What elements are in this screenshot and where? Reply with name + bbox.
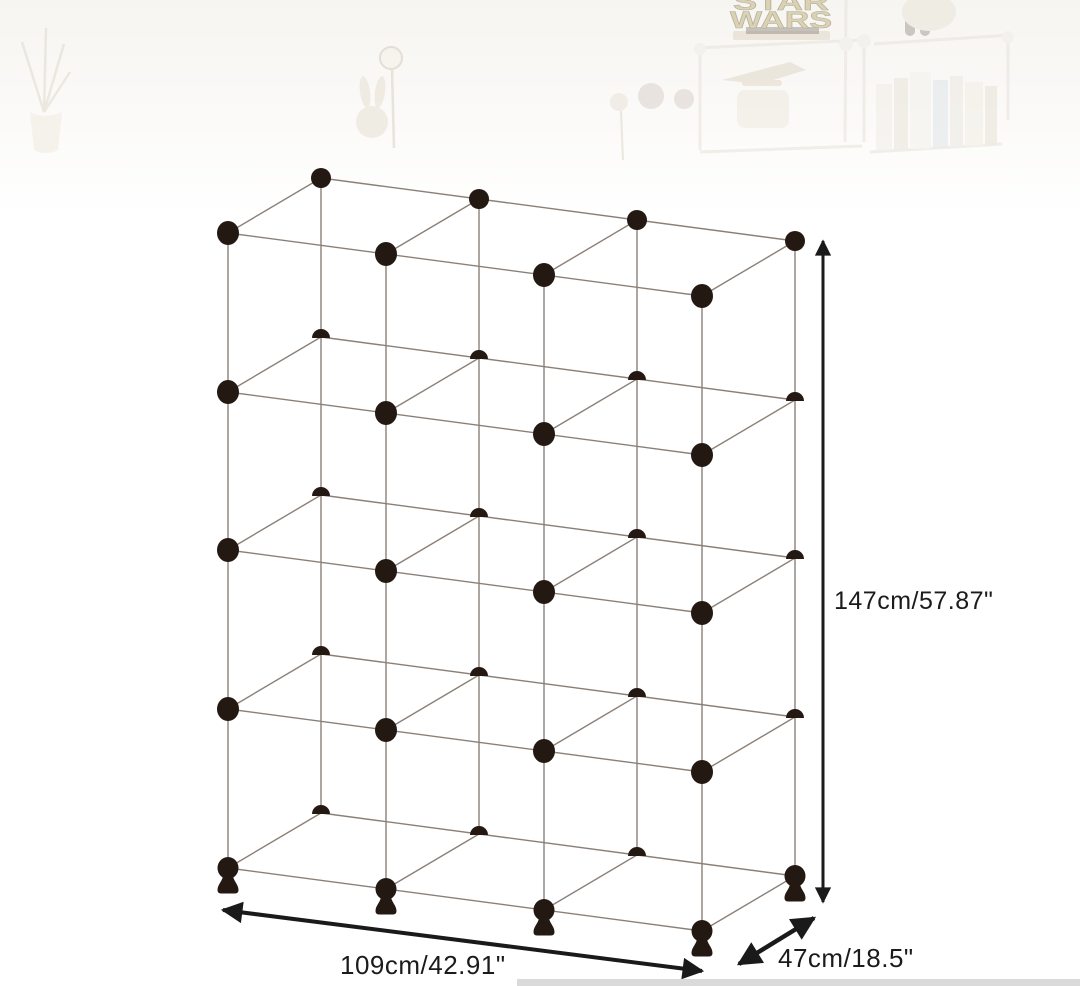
front-connector: [533, 422, 555, 446]
foot: [534, 899, 555, 936]
front-connector: [533, 580, 555, 604]
adjacent-image-edge-strip: [517, 979, 1080, 986]
front-connector: [375, 242, 397, 266]
foot: [785, 865, 806, 902]
front-connector: [691, 284, 713, 308]
back-half-connector: [628, 688, 646, 697]
back-half-connector: [786, 709, 804, 718]
front-connector: [533, 263, 555, 287]
top-panel: [228, 178, 795, 296]
back-half-connector: [470, 508, 488, 517]
back-half-connector: [470, 350, 488, 359]
product-diagram-canvas: STAR WARS: [0, 0, 1080, 986]
foot: [376, 878, 397, 915]
back-top-connector: [785, 231, 805, 251]
back-half-connector: [312, 805, 330, 814]
back-top-connector: [311, 168, 331, 188]
back-half-connector: [470, 667, 488, 676]
front-connector: [217, 697, 239, 721]
front-connector: [217, 380, 239, 404]
back-half-connector: [786, 392, 804, 401]
front-connector: [533, 739, 555, 763]
back-half-connector: [786, 550, 804, 559]
back-half-connector: [628, 529, 646, 538]
height-dimension-label: 147cm/57.87": [834, 588, 993, 616]
back-half-connector: [312, 487, 330, 496]
front-connector: [375, 559, 397, 583]
depth-dimension-label: 47cm/18.5": [778, 944, 914, 973]
front-connector: [217, 538, 239, 562]
back-half-connector: [312, 646, 330, 655]
front-connector: [691, 443, 713, 467]
front-connector: [217, 221, 239, 245]
wireframe-structure: [217, 168, 806, 957]
back-half-connector: [628, 371, 646, 380]
cube-organizer-wireframe: [0, 0, 1080, 986]
back-top-connector: [627, 210, 647, 230]
foot: [218, 857, 239, 894]
front-connector: [375, 401, 397, 425]
back-top-connector: [469, 189, 489, 209]
back-half-connector: [312, 329, 330, 338]
width-dimension-label: 109cm/42.91": [340, 951, 506, 980]
foot: [692, 920, 713, 957]
front-connector: [375, 718, 397, 742]
front-connector: [691, 760, 713, 784]
back-half-connector: [628, 847, 646, 856]
back-half-connector: [470, 826, 488, 835]
front-connector: [691, 601, 713, 625]
